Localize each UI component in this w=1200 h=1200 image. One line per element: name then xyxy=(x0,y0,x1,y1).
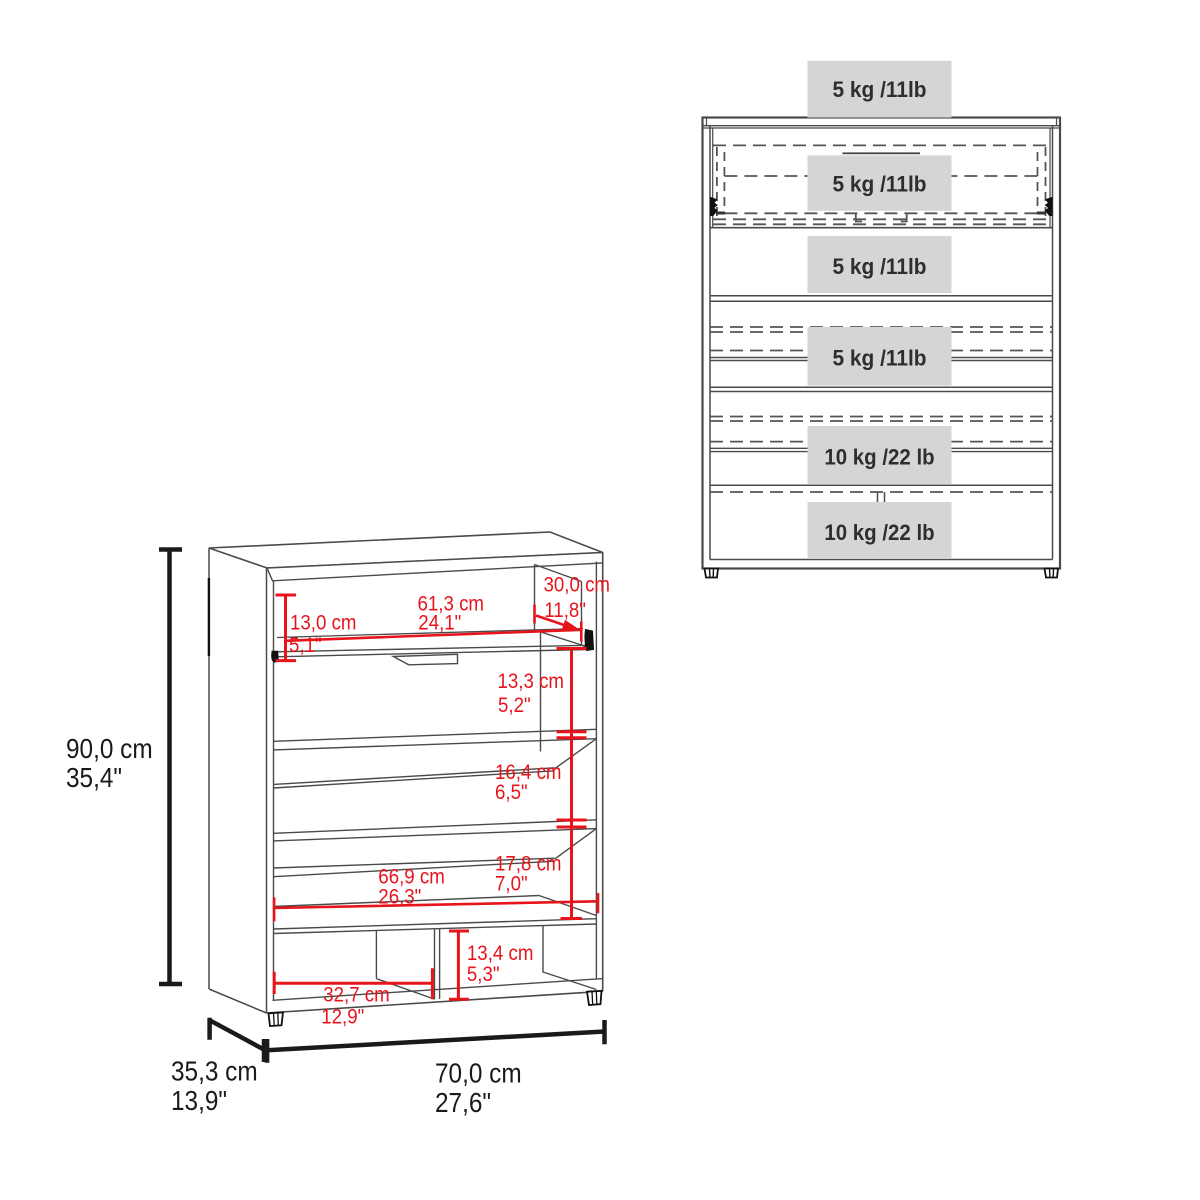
svg-text:13,4 cm: 13,4 cm xyxy=(467,942,534,965)
svg-text:90,0 cm: 90,0 cm xyxy=(66,732,153,764)
svg-text:7,0": 7,0" xyxy=(495,872,528,895)
svg-text:5,3": 5,3" xyxy=(467,963,500,986)
svg-text:11,8": 11,8" xyxy=(544,599,586,622)
svg-text:32,7 cm: 32,7 cm xyxy=(323,983,390,1006)
svg-text:10 kg /22 lb: 10 kg /22 lb xyxy=(824,445,934,470)
svg-text:35,4": 35,4" xyxy=(66,761,122,793)
svg-text:26,3": 26,3" xyxy=(378,885,421,908)
svg-text:10 kg /22 lb: 10 kg /22 lb xyxy=(824,520,934,545)
svg-text:5 kg /11lb: 5 kg /11lb xyxy=(832,254,926,279)
svg-text:13,0 cm: 13,0 cm xyxy=(290,611,357,634)
svg-text:5,1": 5,1" xyxy=(289,634,322,657)
svg-text:5 kg /11lb: 5 kg /11lb xyxy=(832,78,926,103)
svg-text:30,0 cm: 30,0 cm xyxy=(544,573,611,596)
svg-text:13,9": 13,9" xyxy=(171,1084,227,1116)
svg-text:5,2": 5,2" xyxy=(498,694,531,717)
svg-text:27,6": 27,6" xyxy=(435,1086,491,1118)
svg-text:35,3 cm: 35,3 cm xyxy=(171,1055,258,1087)
svg-text:24,1": 24,1" xyxy=(418,611,461,634)
svg-text:13,3 cm: 13,3 cm xyxy=(498,670,565,693)
svg-text:6,5": 6,5" xyxy=(495,781,528,804)
svg-text:5 kg /11lb: 5 kg /11lb xyxy=(832,346,926,371)
svg-text:12,9": 12,9" xyxy=(321,1005,364,1028)
svg-text:5 kg /11lb: 5 kg /11lb xyxy=(832,172,926,197)
svg-text:70,0 cm: 70,0 cm xyxy=(435,1057,522,1089)
